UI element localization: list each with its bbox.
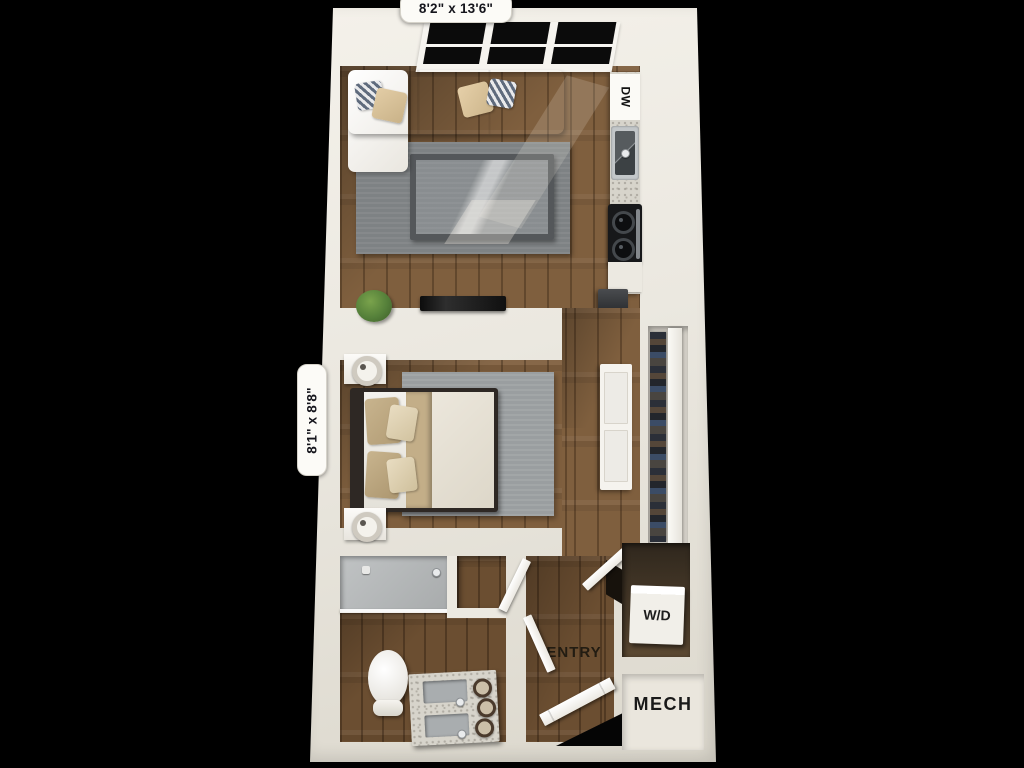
coffee-table	[410, 154, 554, 240]
sofa-pillow-tan	[371, 87, 408, 124]
washer-dryer-unit: W/D	[629, 585, 685, 645]
bed-pillow	[386, 404, 419, 442]
cabinet-end	[608, 262, 642, 292]
mech-label: MECH	[622, 694, 704, 715]
sink-faucet	[621, 149, 630, 158]
stove-rail	[636, 209, 640, 259]
rolled-towel	[473, 678, 493, 698]
dishwasher-label: DW	[618, 87, 632, 108]
rolled-towel	[475, 718, 495, 738]
shower-control	[362, 566, 370, 574]
toilet-base	[373, 700, 403, 716]
bedroom-dimension-text: 8'1" x 8'8"	[305, 387, 320, 453]
toilet	[368, 650, 408, 706]
door-panel-groove	[604, 430, 628, 482]
door-panel-groove	[604, 372, 628, 424]
bathroom-nook-floor	[457, 556, 506, 608]
living-dimension-text: 8'2" x 13'6"	[419, 1, 493, 16]
bathroom-vanity	[408, 670, 500, 747]
bed-pillow	[386, 456, 418, 493]
stove-burner	[612, 211, 635, 234]
sofa-pillow-striped	[486, 78, 517, 109]
shower-glass-door	[340, 609, 447, 613]
window-band	[416, 22, 621, 72]
floor-plan-canvas: DW	[0, 0, 1024, 768]
closet-hanging-clothes	[650, 332, 666, 542]
nightstand-lamp	[352, 512, 382, 542]
closet-sliding-door	[600, 364, 632, 490]
washer-dryer-label: W/D	[643, 607, 671, 624]
bedroom-dimension-label: 8'1" x 8'8"	[297, 364, 327, 476]
shower-head	[432, 568, 441, 577]
tv	[420, 296, 506, 311]
nook-wall	[447, 608, 506, 618]
living-dimension-label: 8'2" x 13'6"	[400, 0, 512, 23]
nightstand-lamp	[352, 356, 382, 386]
stove-cooktop	[608, 204, 642, 264]
window-pane	[487, 22, 550, 64]
window-pane	[551, 22, 616, 64]
bed-duvet	[432, 392, 494, 508]
closet-shelf	[668, 328, 682, 546]
rolled-towel	[477, 698, 497, 718]
window-pane	[423, 22, 486, 64]
floor-plan: DW	[310, 8, 716, 762]
kitchen-sink	[611, 126, 639, 180]
vanity-faucet	[455, 697, 464, 706]
dishwasher: DW	[610, 74, 640, 120]
shower	[340, 556, 447, 612]
stove-burner	[612, 238, 635, 261]
plant	[356, 290, 392, 322]
vanity-faucet	[457, 729, 466, 738]
closet-interior	[648, 326, 688, 548]
